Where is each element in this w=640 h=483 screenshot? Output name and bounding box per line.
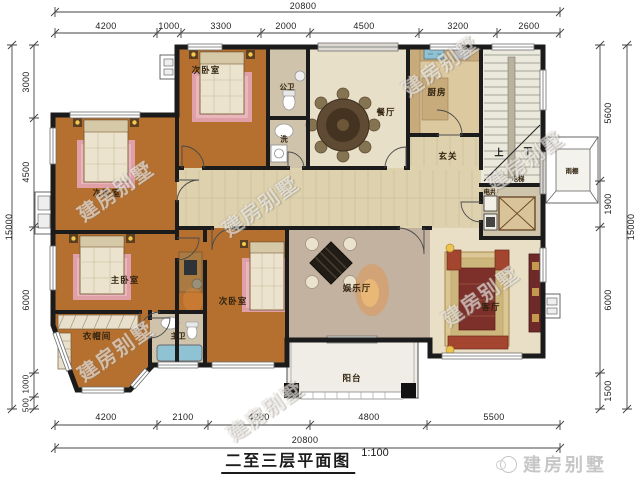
drawing-title-text: 二至三层平面图	[221, 453, 355, 474]
dim-right-4: 1500	[603, 380, 613, 401]
brand-circle-icon	[500, 456, 517, 473]
dim-left-1: 3000	[21, 71, 31, 92]
dim-left-5: 500	[22, 398, 31, 412]
room-label-bedroom-left: 次卧室	[93, 187, 122, 199]
drawing-title: 二至三层平面图1:100	[221, 447, 389, 471]
dim-bottom-4: 4800	[358, 412, 379, 422]
floor-plan-page: 20800 4200 1000 3300 2000 4500 3200 2600…	[0, 0, 640, 483]
dining-table	[306, 88, 380, 162]
room-label-dining: 餐厅	[376, 106, 395, 118]
room-label-living: 客厅	[481, 301, 500, 313]
dim-right-1: 5600	[603, 102, 613, 123]
dim-top-2: 1000	[158, 21, 179, 31]
room-label-kitchen: 厨房	[427, 86, 446, 98]
room-label-closet: 衣帽间	[83, 330, 112, 342]
dim-left-2: 4500	[21, 161, 31, 182]
dim-right-2: 1900	[603, 193, 613, 214]
dim-bottom-3: 4200	[248, 412, 269, 422]
room-label-master-bedroom: 主卧室	[111, 274, 140, 286]
room-label-entertainment: 娱乐厅	[343, 282, 372, 294]
brand-logo: 建房别墅	[500, 451, 607, 477]
room-label-canopy: 雨棚	[566, 165, 579, 175]
brand-text: 建房别墅	[523, 451, 607, 477]
dim-top-6: 3200	[447, 21, 468, 31]
dim-top-1: 4200	[95, 21, 116, 31]
room-label-shaft: 电井	[484, 186, 497, 196]
room-label-bedroom-center: 次卧室	[219, 295, 248, 307]
dim-left-4: 1000	[22, 375, 31, 394]
room-label-bedroom-top: 次卧室	[192, 64, 221, 76]
dim-top-7: 2600	[518, 21, 539, 31]
stairs-down-label: 下	[523, 145, 532, 158]
dim-bottom-5: 5500	[483, 412, 504, 422]
dim-top-total: 20800	[290, 1, 317, 11]
floor-plan-drawing	[0, 0, 640, 483]
dim-top-3: 3300	[210, 21, 231, 31]
room-label-laundry: 洗	[280, 134, 288, 145]
dim-bottom-2: 2100	[172, 412, 193, 422]
stairs-up-label: 上	[494, 146, 503, 159]
dim-bottom-total: 20800	[292, 435, 319, 445]
dim-top-5: 4500	[353, 21, 374, 31]
room-label-foyer: 玄关	[438, 150, 457, 162]
dim-left-total: 15000	[4, 214, 14, 241]
drawing-scale: 1:100	[361, 447, 389, 459]
dim-top-4: 2000	[275, 21, 296, 31]
dim-right-total: 15000	[626, 214, 636, 241]
dim-left-3: 6000	[21, 289, 31, 310]
dim-bottom-1: 4200	[95, 412, 116, 422]
room-label-balcony: 阳台	[342, 372, 361, 384]
room-label-elevator: 电梯	[512, 173, 525, 183]
room-label-master-bath: 主卫	[171, 331, 186, 342]
room-label-public-bath: 公卫	[280, 82, 295, 93]
dim-right-3: 6000	[603, 289, 613, 310]
